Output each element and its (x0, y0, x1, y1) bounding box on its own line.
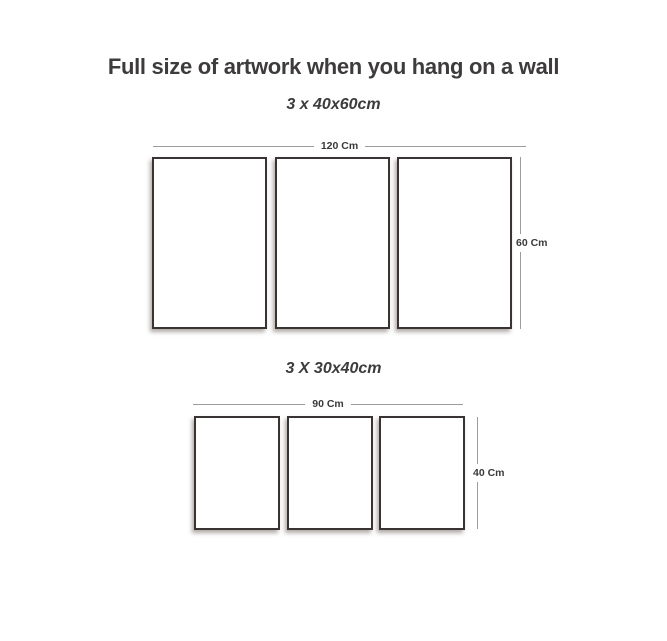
dimension-line-right (351, 404, 463, 405)
artwork-panel-6 (379, 416, 465, 530)
dimension-line-top (520, 157, 521, 234)
dimension-line-left (193, 404, 305, 405)
artwork-panel-2 (275, 157, 390, 329)
dimension-line-left (153, 146, 314, 147)
dimension-line-bottom (477, 482, 478, 529)
group1-width-dimension: 120 Cm (153, 140, 526, 153)
group1-height-value: 60 Cm (516, 238, 548, 249)
group2-height-dimension: 40 Cm (473, 417, 515, 529)
group1-size-label: 3 x 40x60cm (0, 96, 667, 114)
page-title: Full size of artwork when you hang on a … (0, 54, 667, 80)
group2-height-value: 40 Cm (473, 468, 505, 479)
dimension-line-bottom (520, 252, 521, 329)
artwork-panel-3 (397, 157, 512, 329)
artwork-panel-5 (287, 416, 373, 530)
artwork-size-diagram: Full size of artwork when you hang on a … (0, 0, 667, 641)
artwork-panel-4 (194, 416, 280, 530)
artwork-panel-1 (152, 157, 267, 329)
group2-size-label: 3 X 30x40cm (0, 360, 667, 378)
dimension-line-top (477, 417, 478, 464)
group2-width-dimension: 90 Cm (193, 398, 463, 411)
group1-height-dimension: 60 Cm (516, 157, 558, 329)
group2-width-value: 90 Cm (312, 399, 344, 410)
dimension-line-right (365, 146, 526, 147)
group1-width-value: 120 Cm (321, 141, 358, 152)
